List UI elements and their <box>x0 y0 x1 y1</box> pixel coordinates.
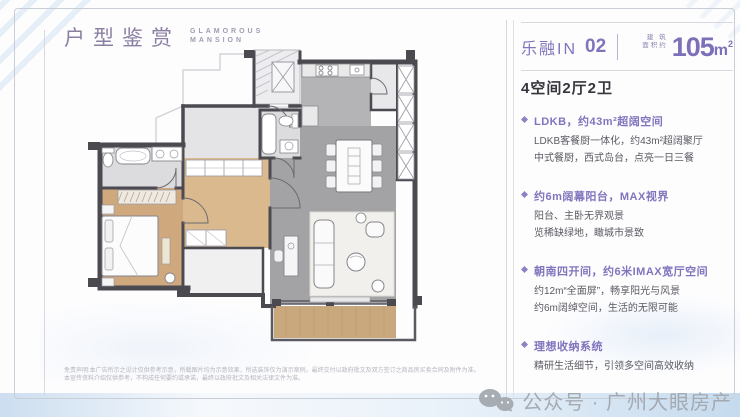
tv-bench-icon <box>310 297 370 302</box>
unit-number: 02 <box>585 36 606 58</box>
feature-item-3: 朝南四开间，约6米IMAX宽厅空间 约12m“全面屏”，畅享阳光与风景 约6m阔… <box>521 263 733 317</box>
diamond-bullet-icon <box>521 341 528 348</box>
feature-line: 约6m阔绰空间，生活的无限可能 <box>534 300 733 317</box>
panel-top-rule <box>521 22 733 23</box>
area-superscript: 2 <box>728 39 733 49</box>
disclaimer: 免责声明:本广告所示之设计仅供参考示意，所载图片均为示意效果，所选装饰仅为演示案… <box>64 367 498 383</box>
feature-line: LDKB客餐厨一体化，约43m²超阔聚厅 <box>534 133 733 150</box>
feature-list: LDKB，约43m²超阔空间 LDKB客餐厨一体化，约43m²超阔聚厅 中式餐厨… <box>521 113 733 375</box>
area-label: 建 筑 面积约 <box>642 34 668 50</box>
feature-item-2: 约6m阔幕阳台，MAX视界 阳台、主卧无界观景 览稀缺绿地，瞰城市景致 <box>521 188 733 242</box>
feature-line: 览稀缺绿地，瞰城市景致 <box>534 225 733 242</box>
pouf-icon <box>372 280 384 292</box>
stool-icon <box>165 273 175 283</box>
left-keyline <box>44 30 45 396</box>
page-subtitle-en-line2: MANSION <box>190 36 263 45</box>
bathtub-icon <box>116 148 150 164</box>
island-counter <box>302 106 318 126</box>
unit-layout: 4空间2厅2卫 <box>521 77 733 98</box>
unit-header-row: 乐融IN 02 建 筑 面积约 105 m 2 <box>521 28 733 66</box>
unit-divider <box>617 34 618 60</box>
area-group: 建 筑 面积约 105 m 2 <box>642 34 733 61</box>
bench-icon <box>162 238 170 264</box>
page-subtitle-en: GLAMOROUS MANSION <box>190 27 263 45</box>
disclaimer-line-1: 免责声明:本广告所示之设计仅供参考示意，所载图片均为示意效果，所选装饰仅为演示案… <box>64 367 498 375</box>
area-value: 105 <box>672 34 714 61</box>
floor-plan <box>58 48 508 363</box>
sink-icon <box>350 65 364 75</box>
wechat-icon <box>478 388 514 414</box>
page-subtitle-en-line1: GLAMOROUS <box>190 27 263 36</box>
nightstand-icon <box>102 205 114 214</box>
stair-core <box>254 50 300 104</box>
wardrobe-icon <box>118 190 176 204</box>
living-room-furniture <box>310 212 394 302</box>
watermark-text: 公众号 · 广州大眼房产 <box>522 386 732 415</box>
toilet-icon-2 <box>279 116 293 126</box>
shower-tub-icon <box>262 114 276 154</box>
nightstand-icon-2 <box>102 278 114 286</box>
dining-table-icon <box>326 140 382 192</box>
diamond-bullet-icon <box>521 116 528 123</box>
feature-item-1: LDKB，约43m²超阔空间 LDKB客餐厨一体化，约43m²超阔聚厅 中式餐厨… <box>521 113 733 167</box>
side-table-icon <box>356 213 366 223</box>
feature-item-4: 理想收纳系统 精研生活细节，引领多空间高效收纳 <box>521 338 733 375</box>
feature-line: 中式餐厨，西式岛台，点亮一日三餐 <box>534 150 733 167</box>
feature-line: 阳台、主卧无界观景 <box>534 208 733 225</box>
armchair-icon <box>366 222 384 237</box>
pillow-icon-2 <box>105 248 113 270</box>
disclaimer-line-2: 本宣传资料介绍仅供参考，不构成任何要约或承诺，最终以政府批文及相关法律文件为准。 <box>64 375 498 383</box>
unit-info-panel: 乐融IN 02 建 筑 面积约 105 m 2 4空间2厅2卫 LDKB，约43… <box>521 28 733 396</box>
unit-name: 乐融IN <box>521 35 577 59</box>
feature-line: 约12m“全面屏”，畅享阳光与风景 <box>534 283 733 300</box>
divider-keyline-2 <box>513 20 514 397</box>
feature-line: 精研生活细节，引领多空间高效收纳 <box>534 358 733 375</box>
area-unit: m <box>714 42 728 60</box>
watermark: 公众号 · 广州大眼房产 <box>478 386 732 415</box>
diamond-bullet-icon <box>521 266 528 273</box>
diamond-bullet-icon <box>521 191 528 198</box>
pillow-icon <box>105 220 113 242</box>
vanity-icon <box>152 147 182 161</box>
sofa-icon <box>314 220 334 288</box>
toilet-icon <box>103 153 113 167</box>
